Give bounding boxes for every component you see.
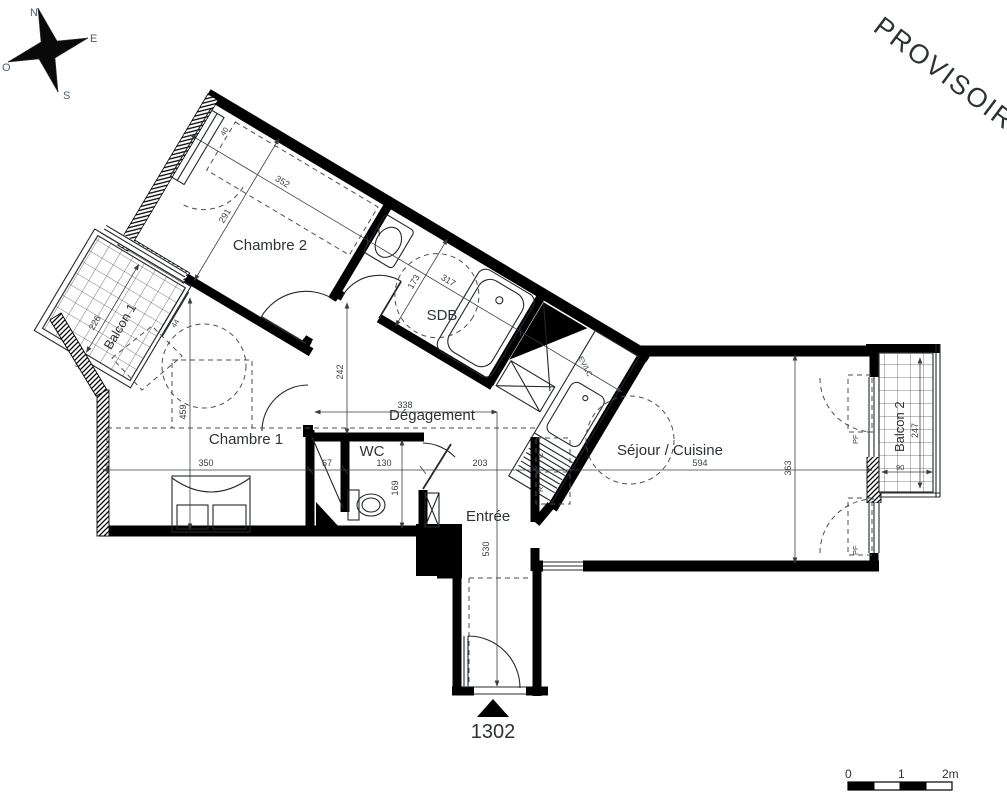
bed	[172, 476, 250, 532]
window-swing-arc	[820, 378, 874, 432]
dim-sejour-width: 594	[692, 458, 707, 468]
wall-balcon2-top	[866, 344, 940, 353]
dim-entree-width: 203	[472, 458, 487, 468]
wall-wing-left-hatched	[118, 94, 218, 251]
compass-east-label: E	[90, 33, 97, 45]
bathtub-drain	[495, 295, 505, 305]
door-stub	[303, 425, 313, 437]
dim-corridor: 530	[481, 541, 491, 556]
bed-cover-curve	[172, 478, 250, 492]
bed-pillow	[177, 505, 208, 529]
compass-south-label: S	[63, 90, 70, 102]
entrance-marker-triangle	[477, 699, 509, 717]
room-label-sdb: SDB	[427, 307, 458, 324]
wall-chambre2-bottom	[187, 278, 312, 352]
floor-plan-drawing: N E S O PROVISOIRE	[0, 0, 1007, 800]
dim-sejour-depth: 363	[783, 460, 793, 475]
room-label-balcon2: Balcon 2	[892, 401, 907, 452]
unit-number: 1302	[471, 721, 516, 743]
dim-chambre2-depth: 291	[217, 207, 233, 225]
window-label-pf-bottom: PF	[851, 545, 860, 555]
compass-west-label: O	[2, 62, 11, 74]
room-label-chambre1: Chambre 1	[209, 431, 283, 448]
compass-north-label: N	[30, 7, 38, 19]
wall-west-hatched	[97, 390, 109, 536]
dim-chambre1-height: 459	[178, 404, 188, 419]
rotated-wing: 352 291 317 173 40 44 Balcon 1 226 92	[28, 76, 651, 618]
toilet-bowl	[357, 494, 385, 516]
cooker-label: C	[536, 452, 545, 458]
scale-tick-1: 1	[898, 767, 905, 781]
dim-line-wing	[190, 135, 621, 392]
floor-plan-page: N E S O PROVISOIRE	[0, 0, 1007, 800]
bed-pillow	[213, 505, 246, 529]
room-label-entree: Entrée	[466, 508, 510, 525]
dim-wc-width: 130	[376, 458, 391, 468]
chambre1-turning-circle	[162, 324, 246, 408]
wall-corner-block	[416, 524, 462, 576]
dim-line-chambre2-depth	[194, 139, 278, 281]
wall-wing-end	[552, 351, 646, 509]
sdb-door-leaf	[379, 281, 401, 318]
chambre1-door-arc	[262, 385, 308, 431]
duct-box-cross	[496, 361, 555, 412]
duct-triangle-2	[316, 502, 340, 528]
closet-diagonal	[312, 437, 343, 508]
dim-degagement-width: 338	[397, 400, 412, 410]
room-label-chambre2: Chambre 2	[233, 237, 307, 254]
kitchen-faucet	[582, 395, 589, 402]
window-swing-arc	[820, 499, 874, 553]
window-label-pf-top: PF	[851, 434, 860, 444]
dim-sdb-depth: 173	[406, 273, 422, 291]
provisoire-watermark: PROVISOIRE	[868, 11, 1007, 148]
dim-degagement-depth: 242	[335, 364, 345, 379]
wall-sdb-bottom-stub	[336, 293, 343, 297]
dim-balcon2-length: 247	[910, 423, 920, 438]
scale-bar: 0 1 2m	[845, 767, 959, 790]
compass-rose-icon: N E S O	[2, 7, 97, 102]
dim-chambre2-window: 40	[218, 126, 230, 138]
dim-chambre2-width: 352	[274, 173, 292, 189]
scale-tick-2m: 2m	[942, 767, 959, 781]
wall-sdb-bottom	[379, 318, 492, 386]
dim-chambre1-width: 350	[198, 458, 213, 468]
scale-tick-0: 0	[845, 767, 852, 781]
dim-wc-closet: 67	[322, 458, 332, 468]
sejour-window-bottom	[866, 503, 882, 553]
entrance-door	[464, 636, 520, 688]
wall-chambre2-sdb	[333, 202, 390, 298]
fridge-label: R	[536, 486, 545, 492]
sejour-window-south	[543, 560, 583, 572]
toilet-bowl-inner	[362, 498, 380, 512]
dim-wc-depth: 169	[390, 480, 400, 495]
dim-sdb-width: 317	[439, 272, 457, 288]
dim-balcon2-width: 90	[896, 463, 904, 472]
room-label-sejour: Séjour / Cuisine	[617, 442, 723, 459]
